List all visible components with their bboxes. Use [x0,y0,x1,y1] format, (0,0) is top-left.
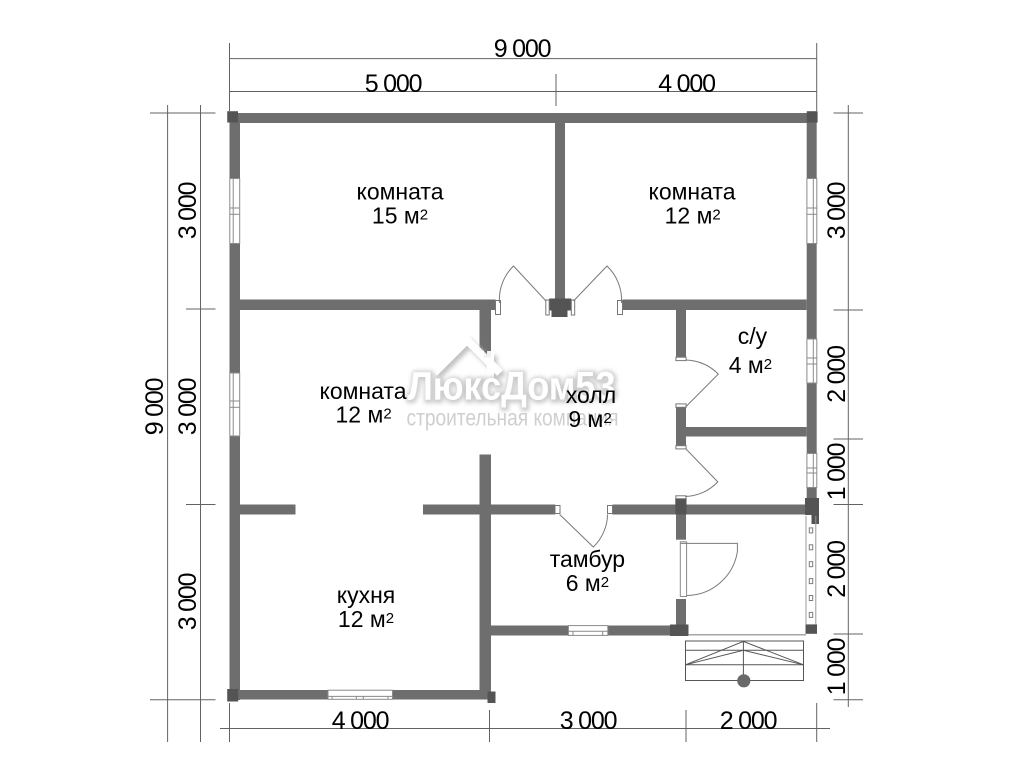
svg-text:2 000: 2 000 [823,346,851,403]
svg-text:3 000: 3 000 [174,378,202,435]
svg-text:комната: комната [649,179,736,205]
svg-text:1 000: 1 000 [823,443,851,500]
svg-text:5 000: 5 000 [365,70,422,98]
svg-text:3 000: 3 000 [560,707,617,735]
svg-text:12 м2: 12 м2 [338,606,394,632]
svg-text:9 000: 9 000 [494,35,551,63]
svg-text:15 м2: 15 м2 [372,203,428,229]
svg-text:3 000: 3 000 [823,182,851,239]
svg-text:4 000: 4 000 [658,70,715,98]
svg-text:12 м2: 12 м2 [665,203,721,229]
svg-text:комната: комната [320,378,407,404]
svg-text:тамбур: тамбур [550,546,625,572]
svg-text:комната: комната [357,179,444,205]
svg-text:холл: холл [566,382,616,408]
svg-text:1 000: 1 000 [823,638,851,695]
svg-text:4 000: 4 000 [332,707,389,735]
svg-text:3 000: 3 000 [174,182,202,239]
svg-text:кухня: кухня [337,582,395,608]
svg-text:с/у: с/у [738,323,768,349]
svg-text:2 000: 2 000 [720,707,777,735]
svg-text:9 000: 9 000 [141,378,169,435]
svg-text:3 000: 3 000 [174,573,202,630]
svg-text:12 м2: 12 м2 [336,402,392,428]
svg-text:2 000: 2 000 [823,541,851,598]
